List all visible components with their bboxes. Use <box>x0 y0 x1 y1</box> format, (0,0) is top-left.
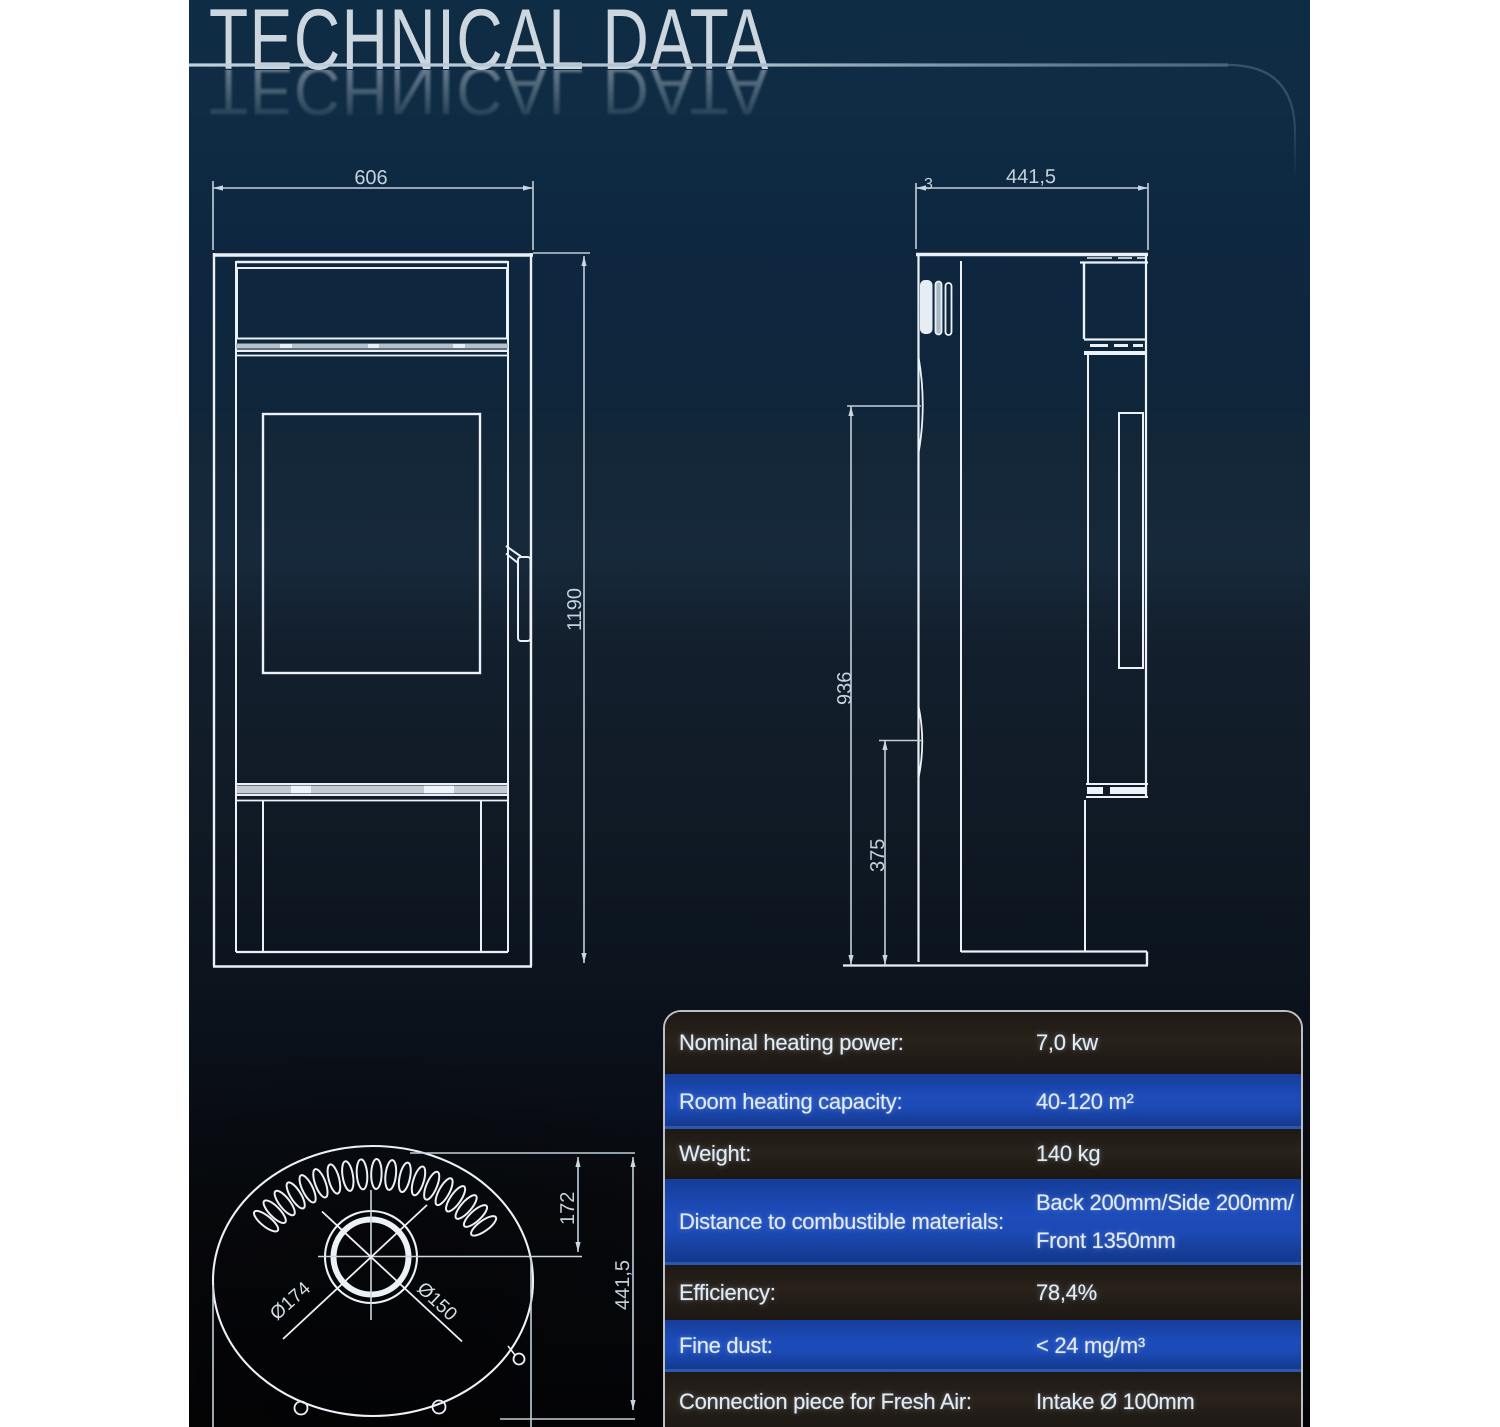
svg-text:441,5: 441,5 <box>612 1260 634 1310</box>
svg-text:1190: 1190 <box>564 588 586 631</box>
svg-text:Ø174: Ø174 <box>266 1278 315 1325</box>
svg-text:441,5: 441,5 <box>1006 166 1056 188</box>
svg-text:936: 936 <box>834 672 856 705</box>
svg-text:3: 3 <box>924 176 933 193</box>
svg-text:172: 172 <box>557 1192 579 1225</box>
svg-text:375: 375 <box>867 839 889 872</box>
svg-text:606: 606 <box>354 167 387 189</box>
